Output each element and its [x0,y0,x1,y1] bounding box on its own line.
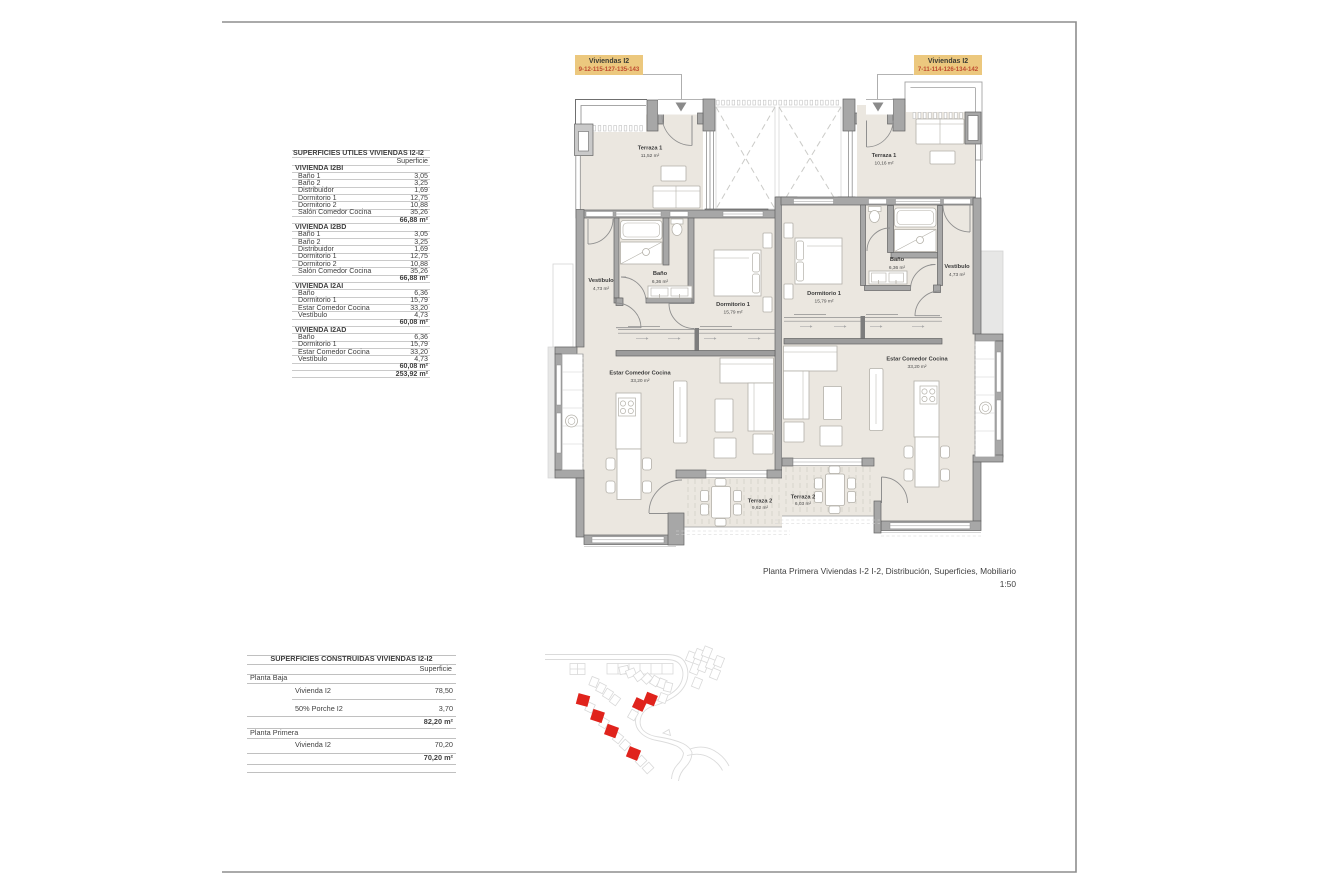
svg-text:Dormitorio 1: Dormitorio 1 [716,302,750,308]
svg-text:Terraza 1: Terraza 1 [638,146,663,152]
svg-text:Vestíbulo: Vestíbulo [944,264,970,270]
svg-text:33,20 m²: 33,20 m² [908,364,927,370]
svg-text:Baño: Baño [653,271,668,277]
svg-text:Terraza 2: Terraza 2 [791,495,816,501]
svg-text:11,52 m²: 11,52 m² [641,153,660,159]
svg-text:Vestíbulo: Vestíbulo [588,278,614,284]
svg-text:15,79 m²: 15,79 m² [724,310,743,316]
svg-text:4,73 m²: 4,73 m² [593,286,610,292]
svg-text:4,73 m²: 4,73 m² [949,272,966,278]
svg-text:15,79 m²: 15,79 m² [815,299,834,305]
svg-text:Terraza 1: Terraza 1 [872,153,897,159]
svg-text:Baño: Baño [890,257,905,263]
svg-text:Estar Comedor Cocina: Estar Comedor Cocina [886,357,948,363]
svg-text:6,03 m²: 6,03 m² [795,501,812,507]
svg-text:10,16 m²: 10,16 m² [875,161,894,167]
svg-text:9,62 m²: 9,62 m² [752,505,769,511]
svg-text:6,36 m²: 6,36 m² [652,279,669,285]
svg-text:Estar Comedor Cocina: Estar Comedor Cocina [609,371,671,377]
svg-text:33,20 m²: 33,20 m² [631,378,650,384]
svg-text:6,36 m²: 6,36 m² [889,265,906,271]
svg-text:Dormitorio 1: Dormitorio 1 [807,291,841,297]
svg-text:Terraza 2: Terraza 2 [748,499,773,505]
